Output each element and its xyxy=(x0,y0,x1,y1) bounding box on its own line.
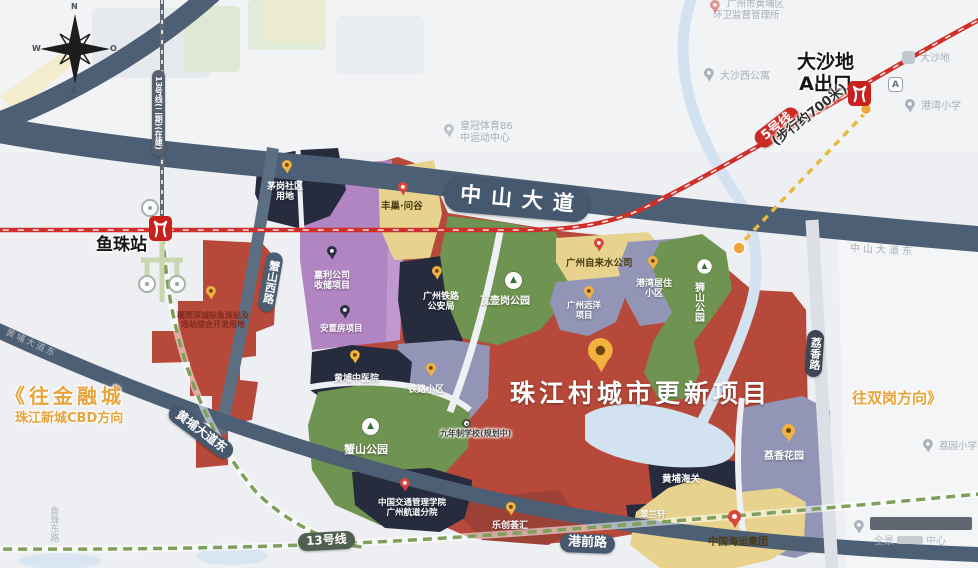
parcel-label-tcm-hospital: 黄埔中医院 xyxy=(334,374,379,384)
map-pin-icon xyxy=(923,439,933,453)
compass-west-label: W xyxy=(32,44,41,53)
poi-label-liyuan-school: 荔园小学 xyxy=(939,442,977,453)
map-pin-icon xyxy=(506,502,516,516)
road-label-yuzhu-east-faint: 鱼珠东路 xyxy=(48,506,58,542)
parcel-label-maogang: 茅岗社区 用地 xyxy=(256,182,314,203)
poi-label-dashadi-area: 大沙地 xyxy=(920,53,950,65)
map-pin-icon xyxy=(206,286,216,300)
project-pin-icon xyxy=(588,338,613,374)
parcel-label-nine-year-school: 九年制学校(规划中) xyxy=(440,429,511,438)
station-label-yuzhu: 鱼珠站 xyxy=(96,236,147,256)
poi-label-sanitation-line2: 环卫监督管理所 xyxy=(713,11,780,22)
tree-icon xyxy=(505,272,522,289)
compass-rose-icon: N W O S xyxy=(38,4,112,100)
map-pin-icon xyxy=(398,182,408,196)
line13-label: 13号线 xyxy=(298,531,356,552)
watermark-redaction-bar xyxy=(870,517,972,530)
line13-phase2-label: 13号线(二期)(在建) xyxy=(152,70,165,156)
parcel-label-cuilanxuan: 翠兰轩 xyxy=(640,511,666,521)
tree-icon xyxy=(362,418,379,435)
urban-renewal-map: N W O S 13号线(二期)(在建) 鱼珠站 大沙地 A出口 A 5号线 (… xyxy=(0,0,978,568)
direction-to-shuanggang: 往双岗方向》 xyxy=(852,390,942,407)
map-pin-icon xyxy=(350,350,360,364)
poi-label-gangwan-school: 港湾小学 xyxy=(921,101,961,113)
building-icon xyxy=(902,51,915,64)
metro-logo-icon xyxy=(149,216,172,245)
parcel-label-gangwan-estate: 港湾居住 小区 xyxy=(630,279,678,300)
parcel-label-china-shipping: 中国海运集团 xyxy=(708,537,768,549)
map-pin-icon xyxy=(854,520,864,534)
map-pin-icon xyxy=(444,124,454,138)
map-pin-icon xyxy=(704,68,714,82)
map-pin-icon xyxy=(648,256,658,270)
school-dot-pin-icon xyxy=(462,419,471,428)
poi-label-sports-center: 皇冠体育86 中运动中心 xyxy=(460,121,513,144)
parcel-label-customs: 黄埔海关 xyxy=(662,475,700,486)
map-pin-icon xyxy=(782,424,795,443)
map-pin-icon xyxy=(282,160,292,174)
parcel-label-railway-estate: 铁路小区 xyxy=(408,385,444,395)
parcel-label-yuanyang: 广州远洋 项目 xyxy=(560,302,608,322)
compass-north-label: N xyxy=(71,2,78,11)
parcel-label-shishan-park: 狮山公园 xyxy=(692,282,704,322)
parcel-label-railway-police: 广州铁路 公安局 xyxy=(413,292,469,313)
map-pin-icon xyxy=(400,478,410,492)
road-label-lixiang: 荔香路 xyxy=(804,329,824,377)
walk-destination-dot xyxy=(733,242,745,254)
parcel-label-transport-college: 中国交通管理学院 广州航道分院 xyxy=(372,499,452,519)
road-label-gangqian: 港前路 xyxy=(560,533,616,554)
tree-icon xyxy=(697,259,711,273)
poi-label-dashaxi-apartment: 大沙西公寓 xyxy=(720,71,770,83)
parcel-label-lixiang-garden: 荔香花园 xyxy=(764,451,804,463)
exit-a-badge-icon: A xyxy=(888,77,903,92)
blurred-text-bar xyxy=(897,536,923,544)
watermark-text: 全景中心 xyxy=(874,536,946,548)
parcel-label-lechuang: 乐创荟汇 xyxy=(492,521,528,531)
parcel-label-wahugang-park: 瓦壶岗公园 xyxy=(480,296,530,308)
map-pin-icon xyxy=(710,0,720,14)
parcel-label-jiali: 嘉利公司 收储项目 xyxy=(303,271,361,292)
direction-to-zhujiang-cbd: 珠江新城CBD方向 xyxy=(15,412,123,427)
map-pin-icon xyxy=(340,305,350,319)
map-pin-icon xyxy=(426,363,436,377)
parcel-label-suiwanshen: 穗莞深城际鱼珠站及 场站综合开发用地 xyxy=(158,311,268,329)
parcel-label-water-company: 广州自来水公司 xyxy=(566,259,633,270)
parcel-label-xieshan-park: 蟹山公园 xyxy=(344,444,388,457)
parcel-label-port-station: 黄埔水运站 xyxy=(784,541,824,550)
map-pin-icon xyxy=(327,246,337,260)
parcel-label-fengchao: 丰巢·问谷 xyxy=(381,202,423,213)
metro-logo-icon xyxy=(848,81,871,110)
map-pin-icon xyxy=(584,286,594,300)
map-pin-icon xyxy=(432,266,442,280)
dashadi-station-name: 大沙地 xyxy=(797,52,854,74)
map-pin-icon xyxy=(728,510,741,529)
parcel-label-anzhifang: 安置房项目 xyxy=(320,325,363,335)
map-pin-icon xyxy=(905,99,915,113)
map-pin-icon xyxy=(594,238,604,252)
compass-south-label: S xyxy=(71,86,77,95)
direction-to-financial-city: 《往金融城 xyxy=(5,385,125,408)
project-title: 珠江村城市更新项目 xyxy=(510,380,771,409)
compass-east-label: O xyxy=(110,44,117,53)
